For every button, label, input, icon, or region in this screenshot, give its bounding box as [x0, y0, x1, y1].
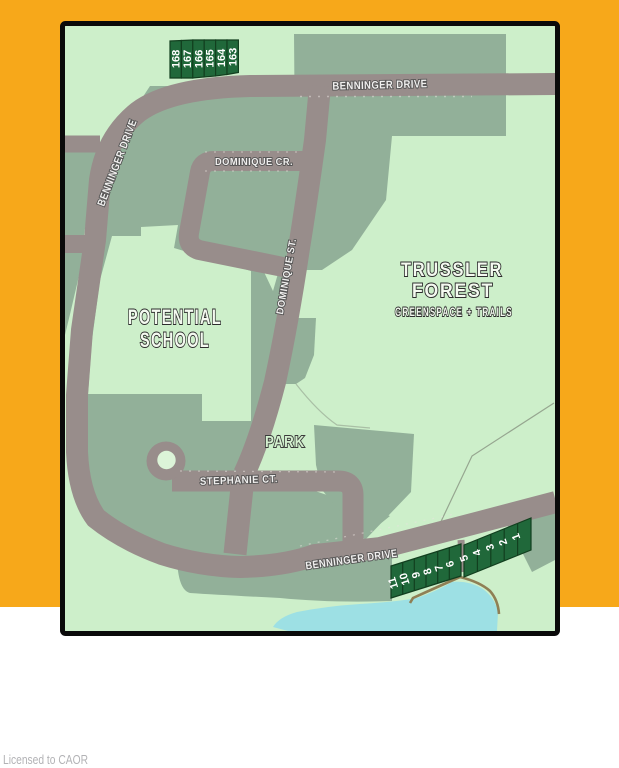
svg-text:Licensed to CAOR: Licensed to CAOR [3, 752, 88, 767]
svg-text:167: 167 [182, 50, 194, 68]
svg-text:166: 166 [193, 50, 205, 68]
svg-text:POTENTIAL: POTENTIAL [128, 306, 222, 329]
svg-text:165: 165 [205, 49, 217, 67]
svg-text:SCHOOL: SCHOOL [140, 329, 210, 352]
svg-text:BENNINGER DRIVE: BENNINGER DRIVE [332, 78, 427, 92]
svg-text:164: 164 [216, 48, 228, 67]
svg-text:DOMINIQUE CR.: DOMINIQUE CR. [215, 156, 293, 168]
svg-text:FOREST: FOREST [412, 280, 494, 302]
svg-text:168: 168 [171, 50, 183, 68]
svg-text:PARK: PARK [265, 434, 305, 451]
svg-text:TRUSSLER: TRUSSLER [401, 259, 503, 281]
svg-text:GREENSPACE + TRAILS: GREENSPACE + TRAILS [395, 305, 513, 319]
svg-text:163: 163 [228, 48, 240, 66]
